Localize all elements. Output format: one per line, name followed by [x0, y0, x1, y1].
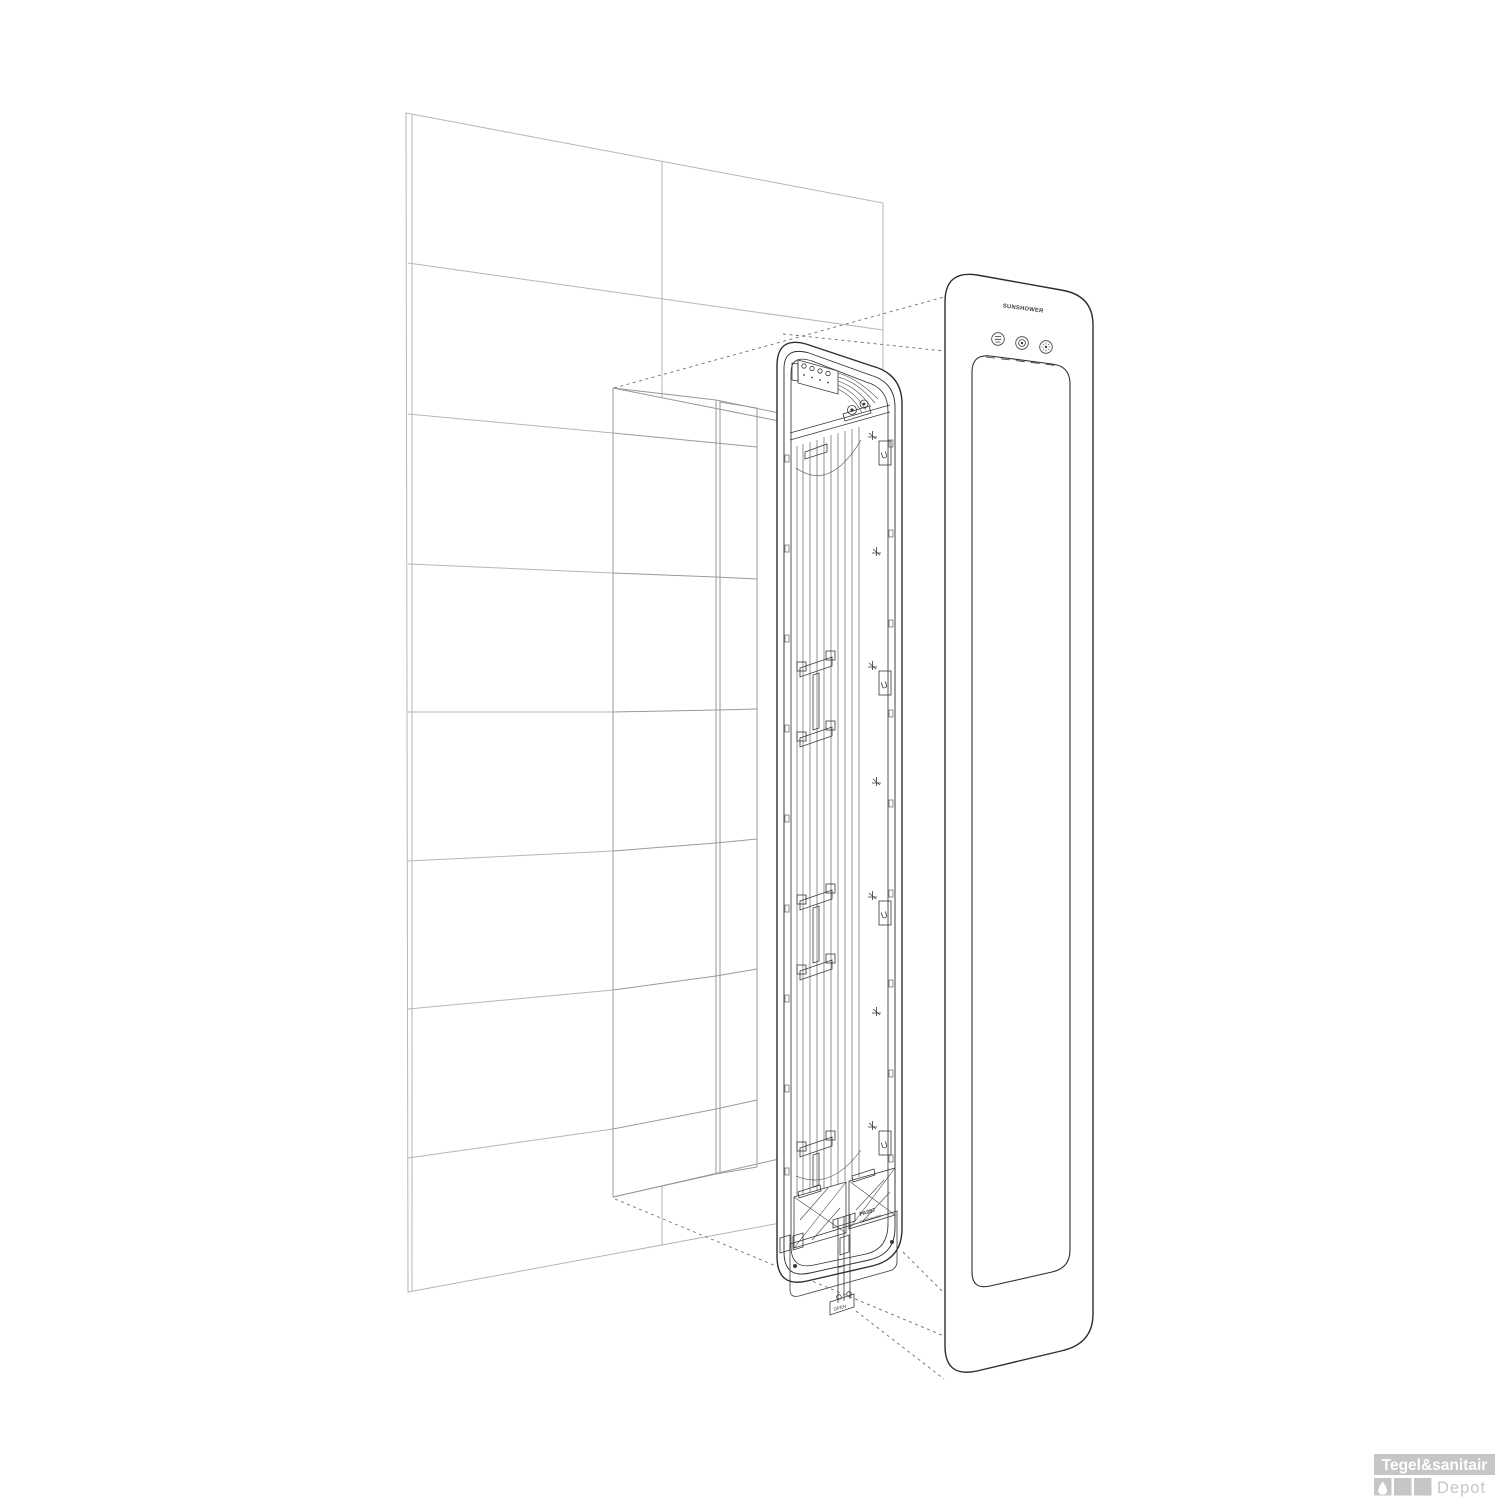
- sun-icon: [1042, 343, 1051, 352]
- tile-joint: [408, 851, 613, 861]
- logo-square: [1394, 1478, 1412, 1496]
- niche-opening-bottom: [613, 1159, 779, 1197]
- logo-watermark: Tegel&sanitair Depot: [1374, 1454, 1495, 1497]
- projection-line-bottom-2: [903, 1252, 944, 1293]
- tile-joint: [408, 414, 613, 433]
- front-panel: SUNSHOWER: [945, 274, 1093, 1372]
- niche-opening-top: [613, 388, 779, 421]
- niche-tile-joint: [613, 1100, 757, 1129]
- niche-tile-joint: [613, 709, 757, 712]
- logo-square: [1414, 1478, 1432, 1496]
- tile-joint: [408, 564, 613, 573]
- logo-primary-text: Tegel&sanitair: [1382, 1457, 1488, 1474]
- tile-joint: [408, 263, 883, 330]
- niche-top-sliver: [720, 402, 757, 408]
- projection-line-bottom-3: [856, 1311, 944, 1379]
- panel-glass-window: [972, 356, 1070, 1287]
- niche-tile-joint: [613, 969, 757, 990]
- tile-joint: [408, 1129, 613, 1158]
- niche-tile-joint: [613, 573, 757, 579]
- wall-niche: [613, 388, 779, 1197]
- logo-secondary-text: Depot: [1437, 1479, 1486, 1497]
- niche-bottom-sliver: [716, 1167, 757, 1174]
- niche-tile-joint: [613, 839, 757, 851]
- exploded-view-drawing: U U U U: [0, 0, 1500, 1500]
- niche-tile-joint: [613, 433, 757, 447]
- sun-button: [1040, 341, 1053, 354]
- open-tab-label: OPEN: [833, 1304, 847, 1312]
- tile-joint: [408, 990, 613, 1009]
- mounting-frame-unit: U U U U: [777, 342, 902, 1315]
- product-illustration-canvas: U U U U: [0, 0, 1500, 1500]
